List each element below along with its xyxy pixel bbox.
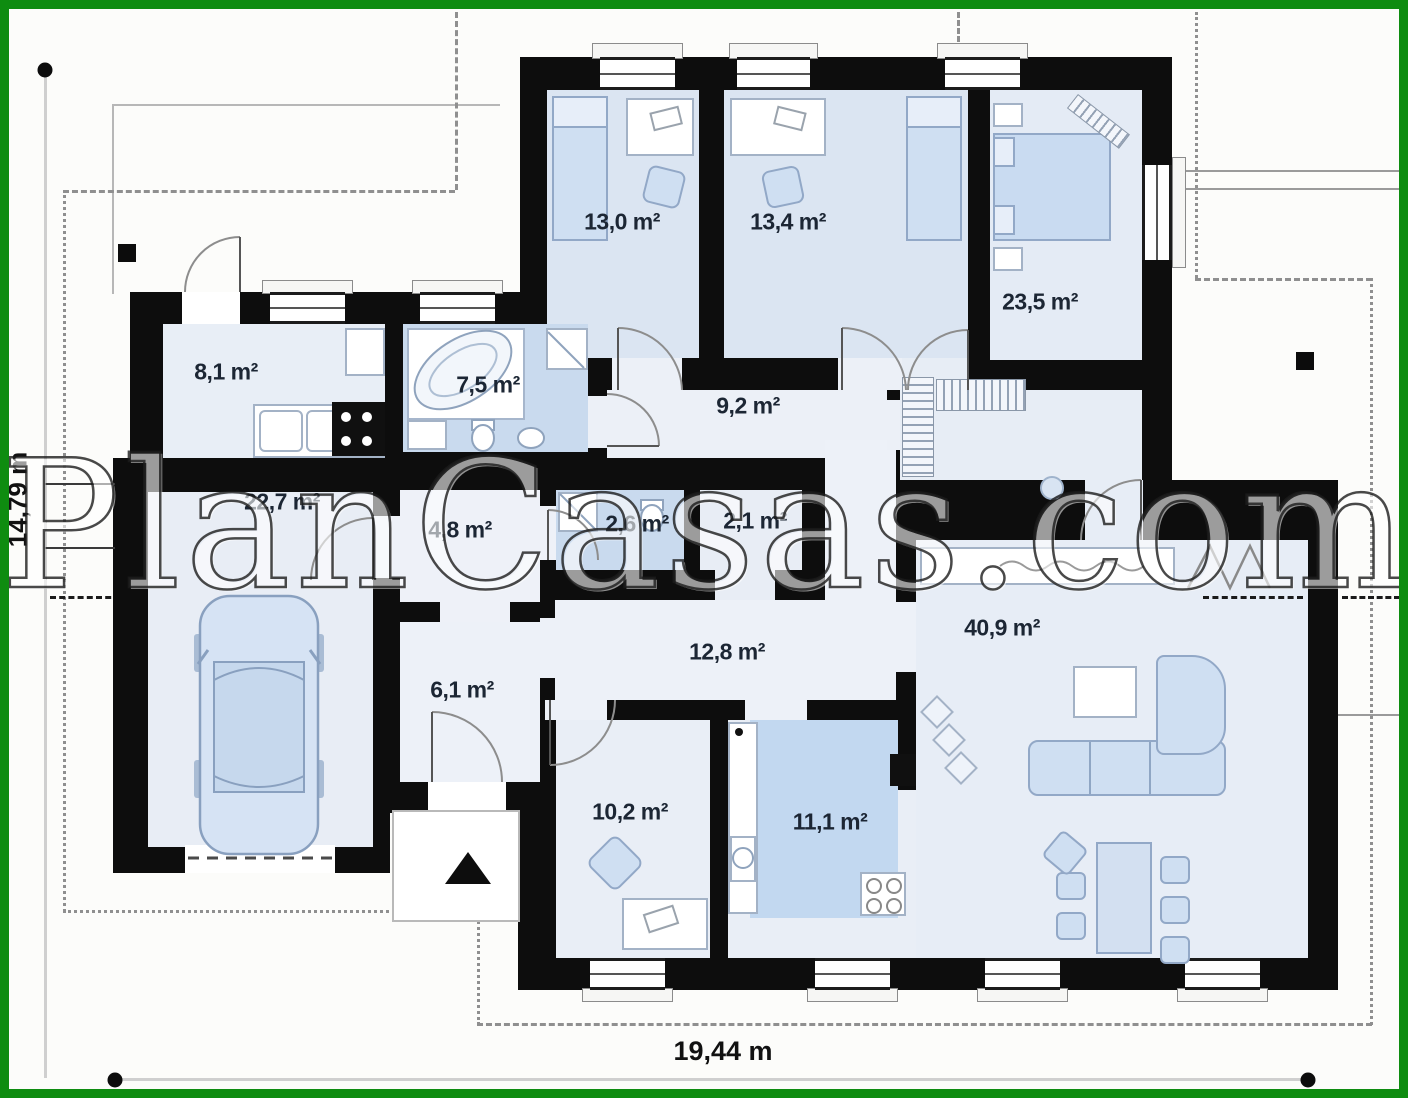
floor-plan-image: 13,0 m² 13,4 m² 23,5 m² 8,1 m² 7,5 m² 9,… xyxy=(0,0,1408,1098)
section-marker-icon xyxy=(118,244,136,262)
decor-icon xyxy=(1000,562,1144,571)
area-label-utility: 8,1 m² xyxy=(194,359,257,386)
area-label-bedroom-1: 13,0 m² xyxy=(584,209,660,236)
width-dimension-label: 19,44 m xyxy=(673,1036,772,1067)
area-label-closet: 2,1 m² xyxy=(723,508,786,535)
plan-curves xyxy=(0,0,1408,1098)
area-label-hallway: 9,2 m² xyxy=(716,393,779,420)
lamp-icon xyxy=(1041,477,1063,499)
bathtub-icon xyxy=(401,315,525,426)
area-label-hall: 4,8 m² xyxy=(428,517,491,544)
burner-rings xyxy=(867,879,901,913)
area-label-bathroom: 7,5 m² xyxy=(456,372,519,399)
sofa-lines xyxy=(1090,742,1150,794)
area-label-wc: 2,6 m² xyxy=(605,511,668,538)
floor-plan: 13,0 m² 13,4 m² 23,5 m² 8,1 m² 7,5 m² 9,… xyxy=(0,0,1408,1098)
height-dimension-label: 14,79 m xyxy=(3,420,34,580)
dimension-dot xyxy=(38,63,53,78)
horizontal-dimension-line xyxy=(115,1078,1308,1081)
dimension-dot xyxy=(1301,1073,1316,1088)
area-label-bedroom-2: 13,4 m² xyxy=(750,209,826,236)
area-label-kitchen: 11,1 m² xyxy=(793,809,868,836)
area-label-entrance-hall: 6,1 m² xyxy=(430,677,493,704)
vertical-dimension-line xyxy=(44,70,47,1078)
zigzag-icon xyxy=(1188,546,1270,588)
area-label-master-bedroom: 23,5 m² xyxy=(1002,289,1078,316)
dimension-dot xyxy=(108,1073,123,1088)
area-label-living: 40,9 m² xyxy=(964,615,1040,642)
area-label-corridor: 12,8 m² xyxy=(689,639,765,666)
car-icon xyxy=(194,596,324,854)
dimension-tick xyxy=(45,547,115,549)
ceiling-dot xyxy=(735,728,743,736)
dimension-tick xyxy=(45,483,115,485)
area-label-office: 10,2 m² xyxy=(592,799,668,826)
area-label-garage: 22,7 m² xyxy=(244,489,320,516)
section-marker-icon xyxy=(1296,352,1314,370)
burner-dots xyxy=(341,412,372,446)
